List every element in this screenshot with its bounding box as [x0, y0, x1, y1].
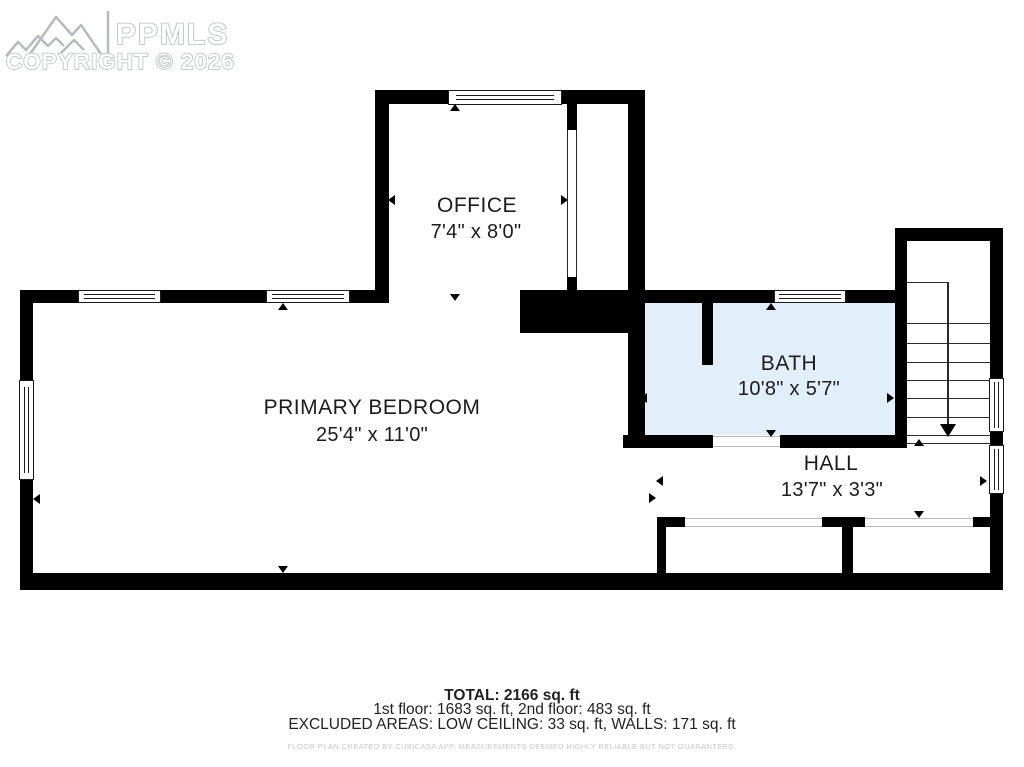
- disclaimer-text: FLOOR PLAN CREATED BY CUBICASA APP. MEAS…: [0, 742, 1024, 751]
- wall: [842, 527, 853, 573]
- wall: [990, 432, 1003, 445]
- room-label-hall: HALL: [804, 452, 859, 476]
- wall: [895, 228, 1003, 241]
- room-label-primary-bedroom: PRIMARY BEDROOM: [264, 396, 481, 420]
- wall-opening-line: [865, 526, 973, 527]
- wall: [973, 517, 1003, 527]
- window: [78, 290, 161, 303]
- room-dimensions-primary-bedroom: 25'4" x 11'0": [316, 424, 428, 447]
- stair-tread-line: [907, 282, 949, 283]
- floor-plan: [0, 0, 1024, 767]
- stair-tread-line: [907, 398, 990, 399]
- wall: [895, 228, 907, 442]
- dimension-arrow-icon: [561, 195, 568, 205]
- wall: [990, 228, 1003, 378]
- floor-plan-page: PPMLS COPYRIGHT © 2026 OFFICE 7'4" x 8'0…: [0, 0, 1024, 767]
- excluded-areas-text: EXCLUDED AREAS: LOW CEILING: 33 sq. ft, …: [0, 716, 1024, 734]
- wall: [520, 290, 628, 333]
- stair-direction-arrow-icon: [940, 424, 956, 437]
- wall: [990, 494, 1003, 590]
- dimension-arrow-icon: [766, 430, 776, 437]
- wall-opening-line: [685, 518, 822, 519]
- dimension-arrow-icon: [388, 195, 395, 205]
- stair-tread-line: [907, 380, 990, 381]
- wall: [702, 303, 713, 365]
- wall: [822, 517, 865, 527]
- dimension-arrow-icon: [33, 494, 40, 504]
- wall: [20, 573, 1003, 590]
- wall-opening-line: [713, 446, 780, 447]
- wall: [623, 435, 713, 448]
- wall: [567, 104, 577, 130]
- stair-tread-line: [907, 323, 990, 324]
- stair-tread-line: [907, 343, 990, 344]
- dimension-arrow-icon: [278, 566, 288, 573]
- room-dimensions-office: 7'4" x 8'0": [431, 221, 522, 244]
- dimension-arrow-icon: [450, 294, 460, 301]
- dimension-arrow-icon: [766, 303, 776, 310]
- window: [448, 90, 562, 105]
- room-label-office: OFFICE: [437, 194, 517, 218]
- window: [266, 290, 350, 303]
- dimension-arrow-icon: [450, 104, 460, 111]
- wall: [375, 90, 389, 302]
- wall: [780, 435, 907, 448]
- wall: [657, 517, 666, 573]
- room-dimensions-hall: 13'7" x 3'3": [781, 479, 883, 502]
- room-label-bath: BATH: [761, 352, 817, 376]
- window: [989, 378, 1004, 432]
- room-dimensions-bath: 10'8" x 5'7": [738, 378, 840, 401]
- dimension-arrow-icon: [887, 393, 894, 403]
- window: [19, 380, 34, 480]
- window: [774, 290, 846, 303]
- stair-tread-line: [947, 282, 949, 424]
- stair-tread-line: [907, 362, 990, 363]
- dimension-arrow-icon: [656, 476, 663, 486]
- wall-opening-line: [685, 526, 822, 527]
- dimension-arrow-icon: [640, 393, 647, 403]
- dimension-arrow-icon: [914, 511, 924, 518]
- dimension-arrow-icon: [278, 303, 288, 310]
- dimension-arrow-icon: [914, 439, 924, 446]
- wall: [628, 290, 907, 303]
- window: [989, 445, 1004, 494]
- dimension-arrow-icon: [980, 476, 987, 486]
- dimension-arrow-icon: [649, 493, 656, 503]
- doorway-jamb-line: [576, 130, 577, 277]
- stair-tread-line: [907, 417, 990, 418]
- wall-opening-line: [865, 518, 973, 519]
